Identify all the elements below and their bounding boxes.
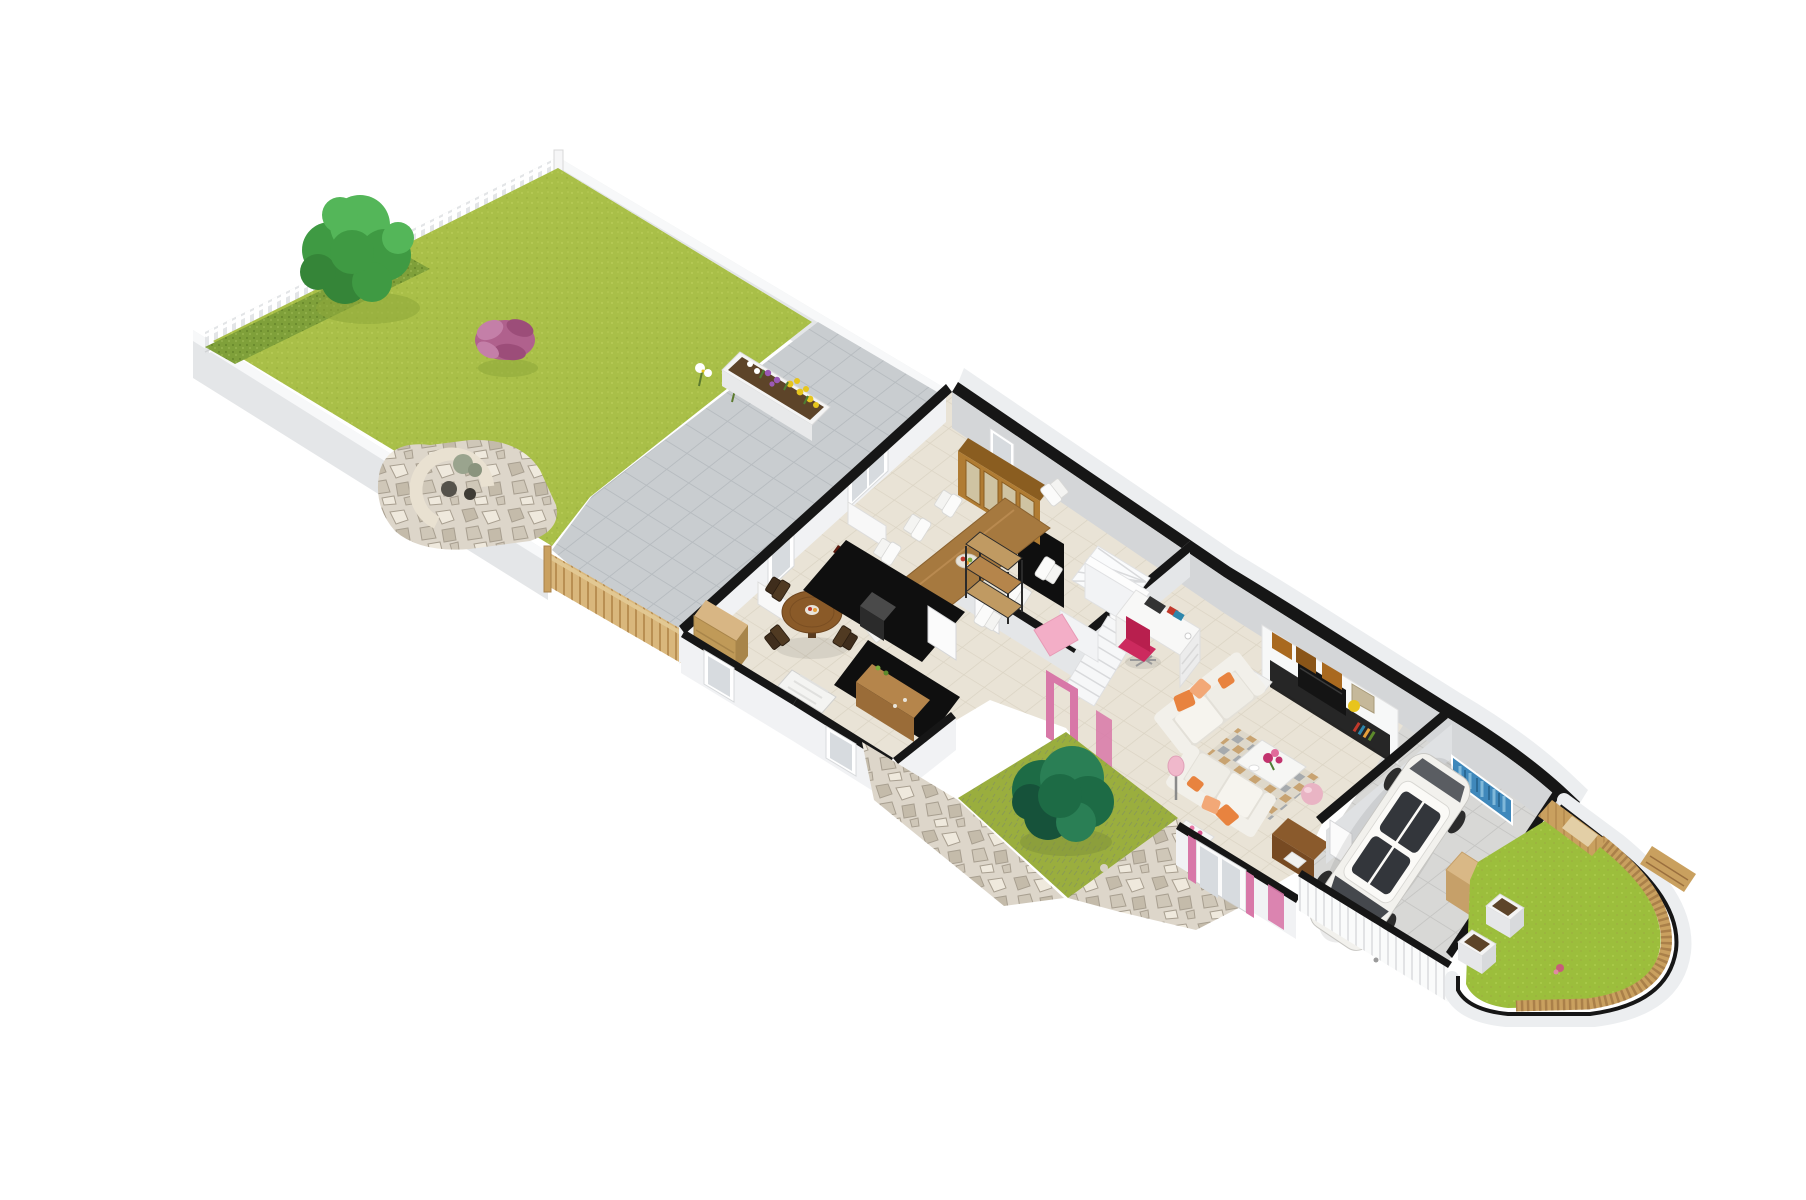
fire-bowl-small (464, 488, 476, 500)
firepit-bush-small (468, 463, 482, 477)
entry-pink-jamb-right (1246, 871, 1254, 918)
mug (1185, 633, 1191, 639)
purple-plant (474, 316, 538, 377)
floor-plan-stage (0, 0, 1806, 1200)
garden-tree (300, 195, 420, 324)
floor-plan-rendering (0, 0, 1806, 1200)
pink-ball (1301, 783, 1323, 805)
yellow-lamp (1348, 700, 1360, 712)
fire-bowl (441, 481, 457, 497)
entry-pink-jamb-left (1188, 835, 1196, 884)
courtyard-ornament (1100, 864, 1108, 872)
